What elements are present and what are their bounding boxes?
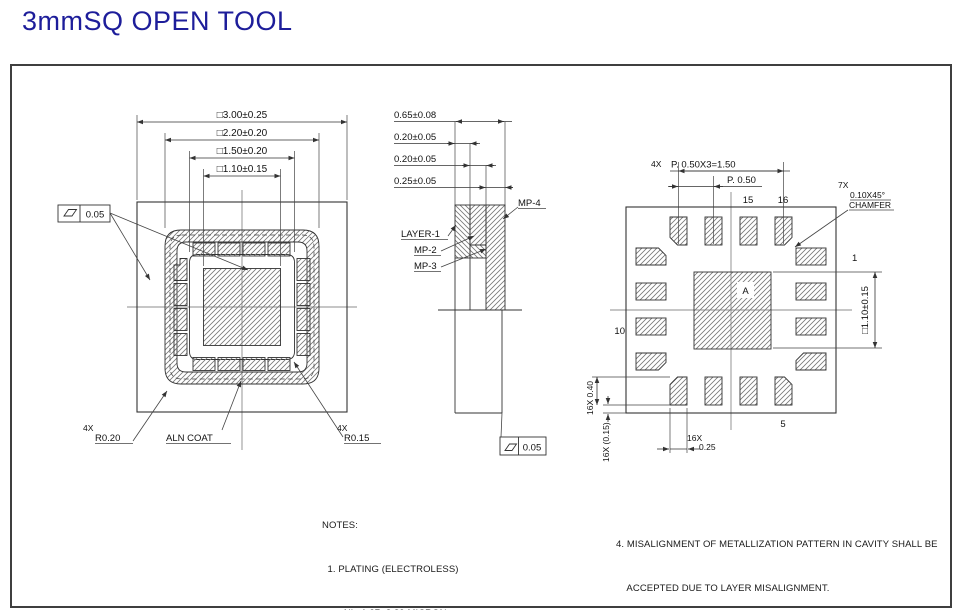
r015-qty: 4X — [337, 423, 348, 433]
pin10-label: 10 — [614, 326, 625, 337]
mp3-section — [470, 245, 486, 258]
section-view: 0.65±0.08 0.20±0.05 0.20±0.05 0.25±0.05 — [394, 110, 546, 455]
dim-0.20-a: 0.20±0.05 — [394, 132, 436, 143]
dim-0.25: 0.25±0.05 — [394, 176, 436, 187]
top-view: □3.00±0.25 □2.20±0.20 □1.50±0.20 □1.10±0… — [58, 110, 381, 450]
note-line: 4. MISALIGNMENT OF METALLIZATION PATTERN… — [616, 538, 938, 553]
pad-10 — [636, 318, 666, 335]
section-flatness-callout: 0.05 — [500, 437, 546, 455]
mp3-label: MP-3 — [414, 261, 437, 272]
chamfer-callout: 7X 0.10X45° CHAMFER — [795, 180, 894, 247]
note-line: 1. PLATING (ELECTROLESS) — [322, 563, 634, 578]
pad-3 — [796, 318, 826, 335]
pad-7 — [705, 377, 722, 405]
pin15-label: 15 — [743, 195, 754, 206]
notes-left-column: NOTES: 1. PLATING (ELECTROLESS) Ni : 1.2… — [322, 490, 634, 610]
section-body — [438, 205, 522, 437]
pad-size-dimensions: 16X 0.40 16X (0.15) 16X 0.25 — [585, 377, 716, 462]
mp2-label: MP-2 — [414, 245, 437, 256]
mp2-section — [470, 205, 486, 245]
notes-right-column: 4. MISALIGNMENT OF METALLIZATION PATTERN… — [616, 509, 938, 610]
r020-label: R0.20 — [95, 433, 120, 444]
flatness-value: 0.05 — [86, 210, 105, 221]
mp4-label: MP-4 — [518, 198, 541, 209]
dim-0.65: 0.65±0.08 — [394, 110, 436, 121]
pad-4 — [796, 353, 826, 370]
flatness-symbol — [64, 210, 77, 217]
drawing-page: 3mmSQ OPEN TOOL — [0, 0, 970, 610]
pitch-total: P. 0.50X3=1.50 — [671, 160, 736, 171]
pad-length-label: 16X 0.40 — [585, 381, 595, 415]
aln-coat-label: ALN COAT — [166, 433, 213, 444]
flatness-symbol — [505, 444, 517, 451]
pad-5 — [775, 377, 792, 405]
da-pad — [694, 272, 771, 349]
pad-15 — [740, 217, 757, 245]
pitch: P. 0.50 — [727, 175, 756, 186]
bottom-view: A 4X P. 0.50X3=1.50 P. 0.50 15 16 1 10 5 — [585, 159, 894, 462]
pad-1 — [796, 248, 826, 265]
r015-label: R0.15 — [344, 433, 369, 444]
pad-width: 0.25 — [699, 442, 716, 452]
section-dimensions: 0.65±0.08 0.20±0.05 0.20±0.05 0.25±0.05 — [394, 110, 513, 205]
cavity-dim-label: □1.10±0.15 — [860, 286, 871, 334]
dim-0.20-b: 0.20±0.05 — [394, 154, 436, 165]
chamfer-qty: 7X — [838, 180, 849, 190]
pitch-total-qty: 4X — [651, 159, 662, 169]
mp4-section — [486, 205, 505, 310]
pad-2 — [796, 283, 826, 300]
pad-6 — [740, 377, 757, 405]
pin16-label: 16 — [778, 195, 789, 206]
datum-a: A — [742, 286, 749, 297]
chamfer-word: CHAMFER — [849, 200, 891, 210]
flatness-value: 0.05 — [523, 443, 542, 454]
note-line: ACCEPTED DUE TO LAYER MISALIGNMENT. — [616, 582, 938, 597]
pin1-label: 1 — [852, 253, 857, 264]
edge-gap-label: 16X (0.15) — [601, 422, 611, 462]
pin5-label: 5 — [780, 419, 785, 430]
pad-12 — [636, 248, 666, 265]
layer1-section — [455, 205, 470, 258]
pad-9 — [636, 353, 666, 370]
r020-qty: 4X — [83, 423, 94, 433]
note-line: NOTES: — [322, 519, 634, 534]
dim-3.00: □3.00±0.25 — [217, 110, 268, 121]
layer1-label: LAYER-1 — [401, 229, 440, 240]
dim-1.50: □1.50±0.20 — [217, 146, 268, 157]
pad-8 — [670, 377, 687, 405]
pad-11 — [636, 283, 666, 300]
dim-1.10: □1.10±0.15 — [217, 164, 268, 175]
dim-2.20: □2.20±0.20 — [217, 128, 268, 139]
chamfer-size: 0.10X45° — [850, 190, 885, 200]
die-attach-pad — [204, 269, 281, 346]
